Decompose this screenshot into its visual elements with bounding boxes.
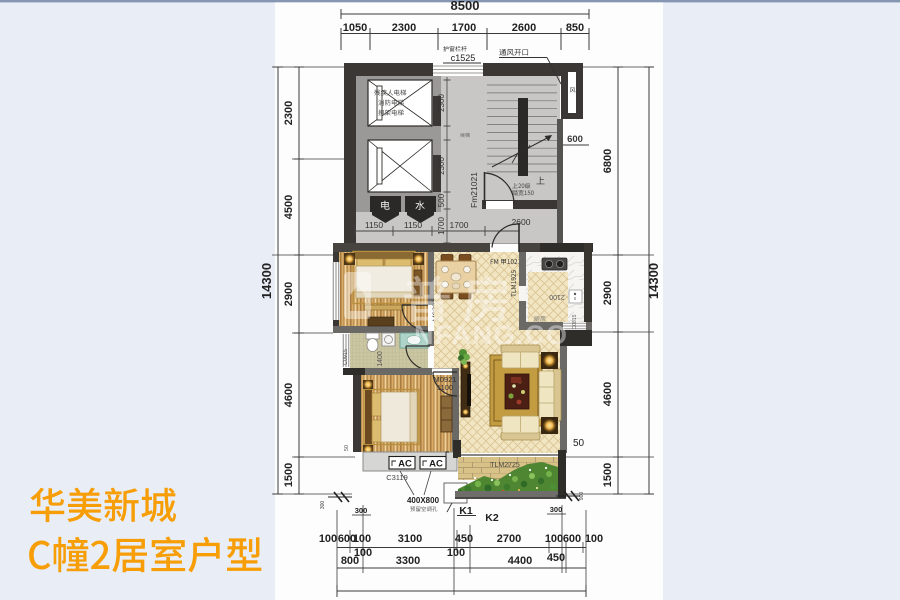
svg-text:50: 50 bbox=[573, 438, 585, 449]
svg-text:50: 50 bbox=[344, 445, 350, 451]
svg-text:300: 300 bbox=[320, 501, 326, 510]
svg-text:K2: K2 bbox=[485, 512, 499, 524]
svg-text:4600: 4600 bbox=[602, 382, 614, 406]
svg-text:4600: 4600 bbox=[283, 383, 295, 407]
svg-text:1150: 1150 bbox=[404, 220, 423, 230]
svg-text:600: 600 bbox=[563, 533, 581, 545]
svg-text:3100: 3100 bbox=[398, 533, 422, 545]
svg-text:2700: 2700 bbox=[497, 533, 521, 545]
svg-text:2900: 2900 bbox=[602, 281, 614, 305]
svg-text:1050: 1050 bbox=[343, 22, 367, 34]
svg-text:AC: AC bbox=[398, 459, 412, 470]
svg-text:450: 450 bbox=[455, 533, 473, 545]
svg-text:6800: 6800 bbox=[602, 149, 614, 173]
svg-text:14300: 14300 bbox=[259, 263, 274, 299]
svg-text:400X800: 400X800 bbox=[407, 496, 440, 505]
svg-text:2600: 2600 bbox=[512, 217, 531, 227]
svg-text:3300: 3300 bbox=[396, 555, 420, 567]
svg-text:300: 300 bbox=[550, 505, 563, 514]
svg-text:1100: 1100 bbox=[437, 383, 453, 392]
svg-text:500: 500 bbox=[437, 193, 446, 207]
svg-text:NFANG.CO: NFANG.CO bbox=[414, 320, 569, 350]
svg-text:100: 100 bbox=[319, 533, 337, 545]
svg-text:1150: 1150 bbox=[365, 220, 384, 230]
svg-text:C0815: C0815 bbox=[572, 314, 578, 329]
svg-text:2600: 2600 bbox=[512, 22, 536, 34]
svg-text:900: 900 bbox=[579, 492, 585, 501]
svg-text:100: 100 bbox=[353, 533, 371, 545]
svg-text:1500: 1500 bbox=[602, 463, 614, 487]
svg-text:2300: 2300 bbox=[283, 101, 295, 125]
svg-text:C0915: C0915 bbox=[343, 349, 349, 365]
svg-text:850: 850 bbox=[566, 22, 584, 34]
svg-text:100: 100 bbox=[545, 533, 563, 545]
svg-text:1700: 1700 bbox=[437, 217, 446, 235]
svg-text:14300: 14300 bbox=[646, 263, 661, 299]
svg-text:800: 800 bbox=[341, 555, 359, 567]
svg-text:1700: 1700 bbox=[450, 220, 469, 230]
svg-text:8500: 8500 bbox=[451, 0, 480, 13]
svg-text:AC: AC bbox=[429, 459, 443, 470]
svg-text:2300: 2300 bbox=[437, 94, 446, 112]
svg-text:C3119: C3119 bbox=[386, 473, 408, 482]
svg-text:600: 600 bbox=[567, 134, 583, 145]
svg-text:1500: 1500 bbox=[283, 463, 295, 487]
svg-text:2300: 2300 bbox=[437, 157, 446, 175]
svg-text:100: 100 bbox=[585, 533, 603, 545]
svg-text:4400: 4400 bbox=[508, 555, 532, 567]
svg-text:1400: 1400 bbox=[377, 351, 384, 367]
svg-text:TLM2725: TLM2725 bbox=[490, 462, 520, 469]
svg-text:100: 100 bbox=[447, 547, 465, 559]
svg-text:4500: 4500 bbox=[283, 195, 295, 219]
svg-text:300: 300 bbox=[355, 506, 368, 515]
svg-text:Fm21021: Fm21021 bbox=[469, 172, 479, 208]
svg-text:2300: 2300 bbox=[392, 22, 416, 34]
svg-text:2100: 2100 bbox=[549, 293, 565, 300]
svg-text:c1525: c1525 bbox=[451, 53, 476, 63]
svg-text:2900: 2900 bbox=[283, 282, 295, 306]
svg-text:450: 450 bbox=[547, 552, 565, 564]
svg-text:1700: 1700 bbox=[452, 22, 476, 34]
